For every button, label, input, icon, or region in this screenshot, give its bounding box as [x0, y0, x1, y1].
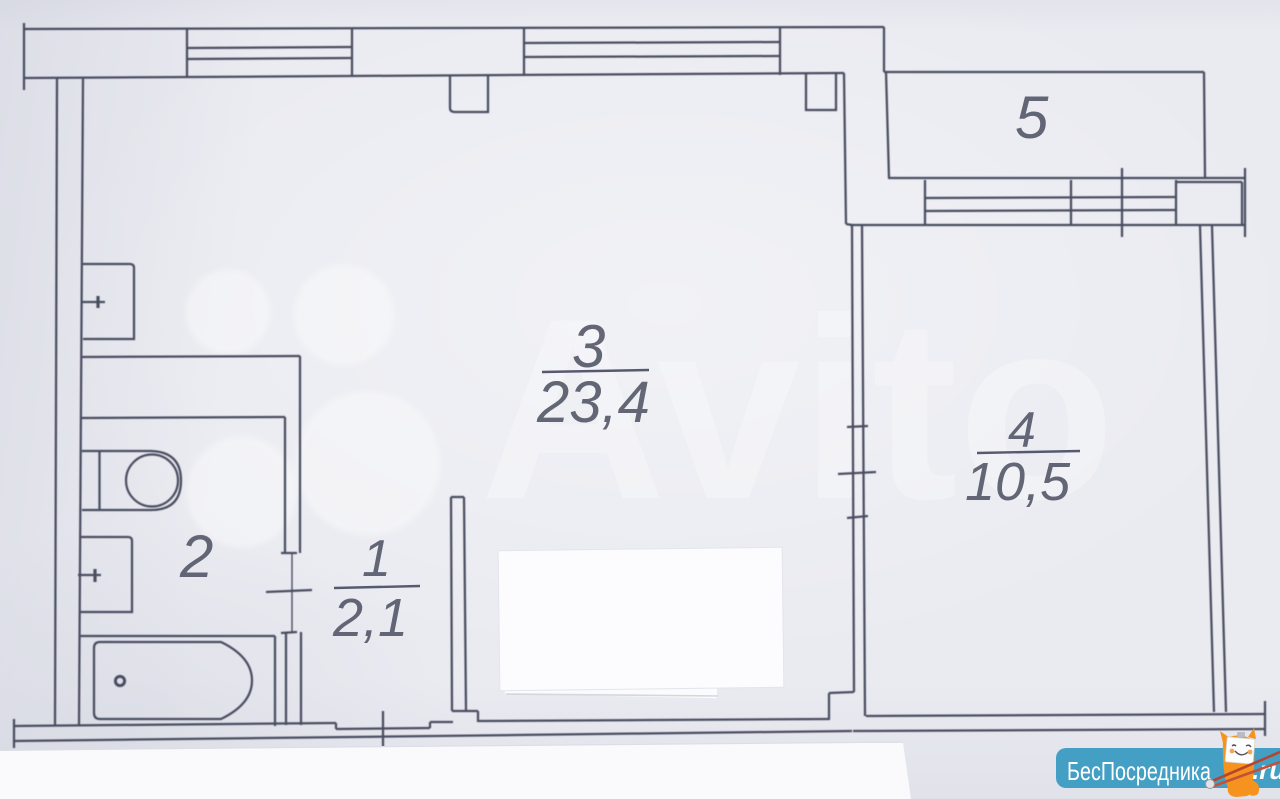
svg-text:БесПосредника: БесПосредника [1067, 756, 1211, 786]
svg-text:23,4: 23,4 [536, 370, 650, 435]
svg-text:1: 1 [362, 530, 391, 588]
svg-text:2: 2 [179, 523, 213, 590]
svg-text:4: 4 [1008, 402, 1036, 458]
svg-text:5: 5 [1015, 84, 1049, 151]
svg-text:2,1: 2,1 [332, 588, 408, 648]
svg-text:10,5: 10,5 [965, 452, 1071, 512]
